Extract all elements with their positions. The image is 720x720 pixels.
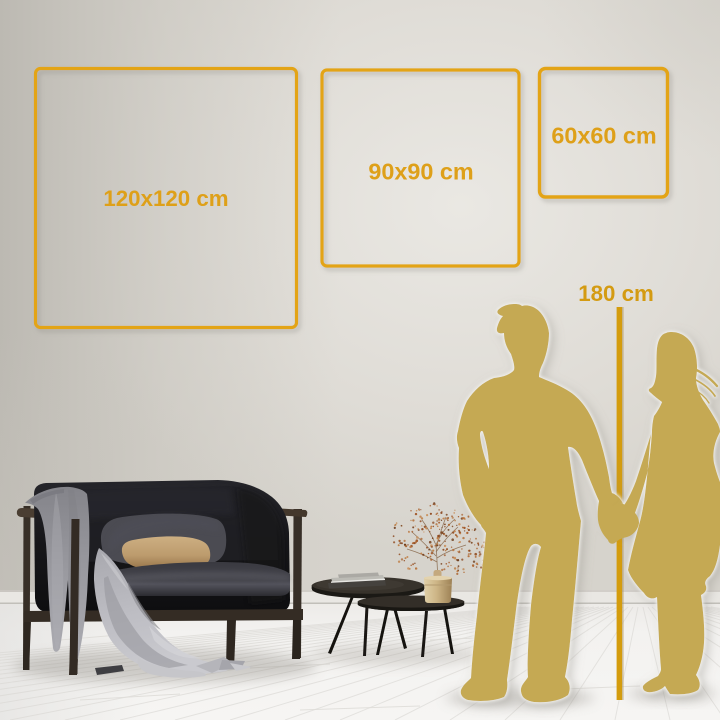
svg-text:60x60 cm: 60x60 cm bbox=[551, 123, 656, 149]
svg-text:90x90 cm: 90x90 cm bbox=[368, 159, 473, 185]
svg-text:120x120 cm: 120x120 cm bbox=[103, 186, 228, 211]
svg-text:180 cm: 180 cm bbox=[578, 281, 654, 306]
